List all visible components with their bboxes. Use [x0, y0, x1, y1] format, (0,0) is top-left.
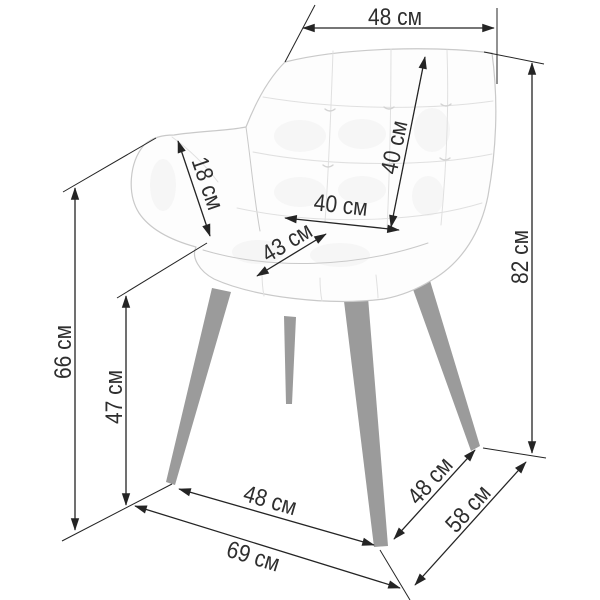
dimension-top-width: 48 см [303, 4, 494, 31]
dimension-label: 82 см [507, 230, 534, 284]
chair-leg-back [284, 316, 296, 404]
dimension-seat-floor-height: 47 см [101, 296, 128, 505]
dimension-overall-width: 69 см [135, 506, 400, 588]
chair-leg-left [166, 288, 231, 485]
dimension-front-width: 48 см [179, 480, 374, 545]
dimension-label: 40 см [313, 189, 370, 221]
dimension-total-height: 82 см [507, 63, 534, 453]
dimension-label: 48 см [368, 4, 422, 31]
chair-leg-front [343, 293, 388, 547]
chair-legs [166, 274, 480, 547]
extension-line [285, 5, 315, 62]
dimension-label: 66 см [50, 325, 77, 379]
diagram-canvas: 48 см 40 см 40 см 43 см 18 см 66 см 47 с… [0, 0, 600, 600]
extension-line [380, 550, 410, 600]
chair-leg-right [410, 274, 480, 451]
extension-line [117, 243, 207, 298]
dimension-armrest-floor-height: 66 см [50, 188, 77, 530]
dimension-label: 58 см [440, 480, 496, 538]
dimension-label: 48 см [402, 452, 458, 510]
extension-line [483, 448, 546, 458]
chair-dimension-diagram: 48 см 40 см 40 см 43 см 18 см 66 см 47 с… [0, 0, 600, 600]
dimension-label: 47 см [101, 370, 128, 424]
dimension-label: 69 см [223, 536, 283, 578]
